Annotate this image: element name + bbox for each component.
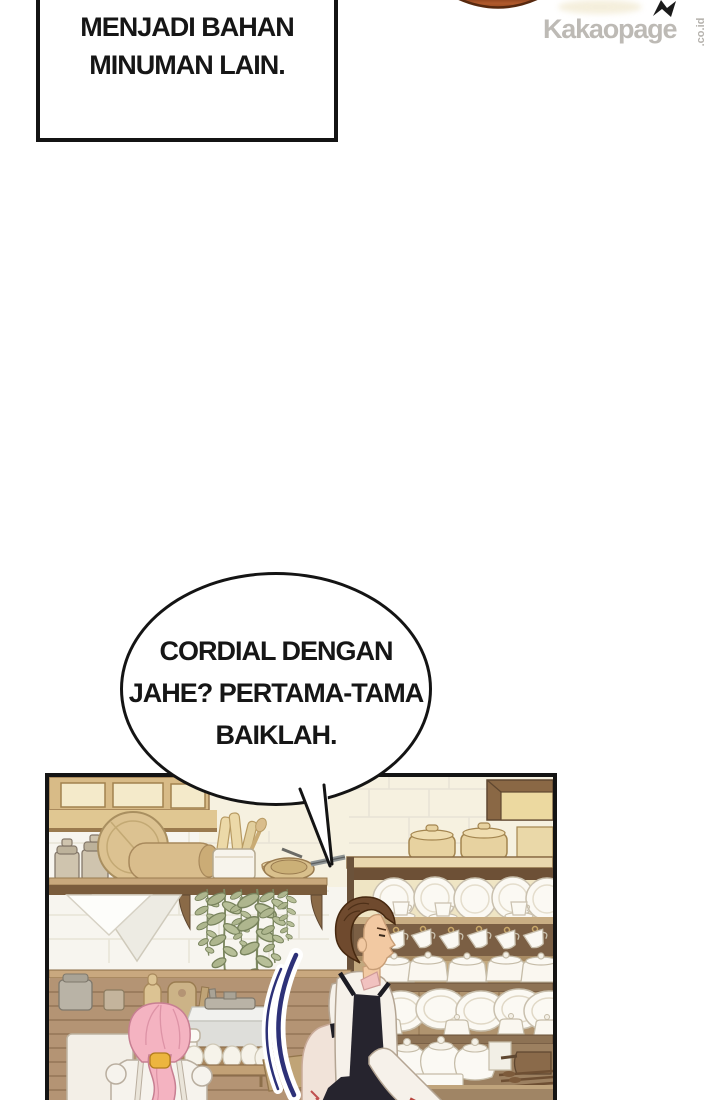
speech-bubble-text: CORDIAL DENGAN JAHE? PERTAMA-TAMA BAIKLA… [129, 622, 423, 756]
speech-bubble: CORDIAL DENGAN JAHE? PERTAMA-TAMA BAIKLA… [120, 572, 432, 806]
comic-panel [45, 773, 557, 1100]
caption-box: BIASANYA AKAN MENJADI BAHAN MINUMAN LAIN… [36, 0, 338, 142]
cropped-artwork-fragment [450, 0, 546, 18]
kitchen-scene-illustration [49, 777, 553, 1100]
bubble-line-1: CORDIAL DENGAN [129, 630, 423, 672]
window-top-right [487, 780, 553, 820]
watermark-suffix: .co.id [695, 12, 707, 52]
caption-text: BIASANYA AKAN MENJADI BAHAN MINUMAN LAIN… [40, 0, 334, 84]
caption-line-3: MINUMAN LAIN. [40, 46, 334, 84]
watermark-smudge [558, 0, 642, 14]
bubble-line-2: JAHE? PERTAMA-TAMA [129, 672, 423, 714]
caption-line-2: MENJADI BAHAN [40, 8, 334, 46]
caption-line-1: BIASANYA AKAN [40, 0, 334, 8]
watermark-brand: Kakaopage [543, 14, 703, 45]
bubble-line-3: BAIKLAH. [129, 714, 423, 756]
comic-page: BIASANYA AKAN MENJADI BAHAN MINUMAN LAIN… [0, 0, 720, 1100]
